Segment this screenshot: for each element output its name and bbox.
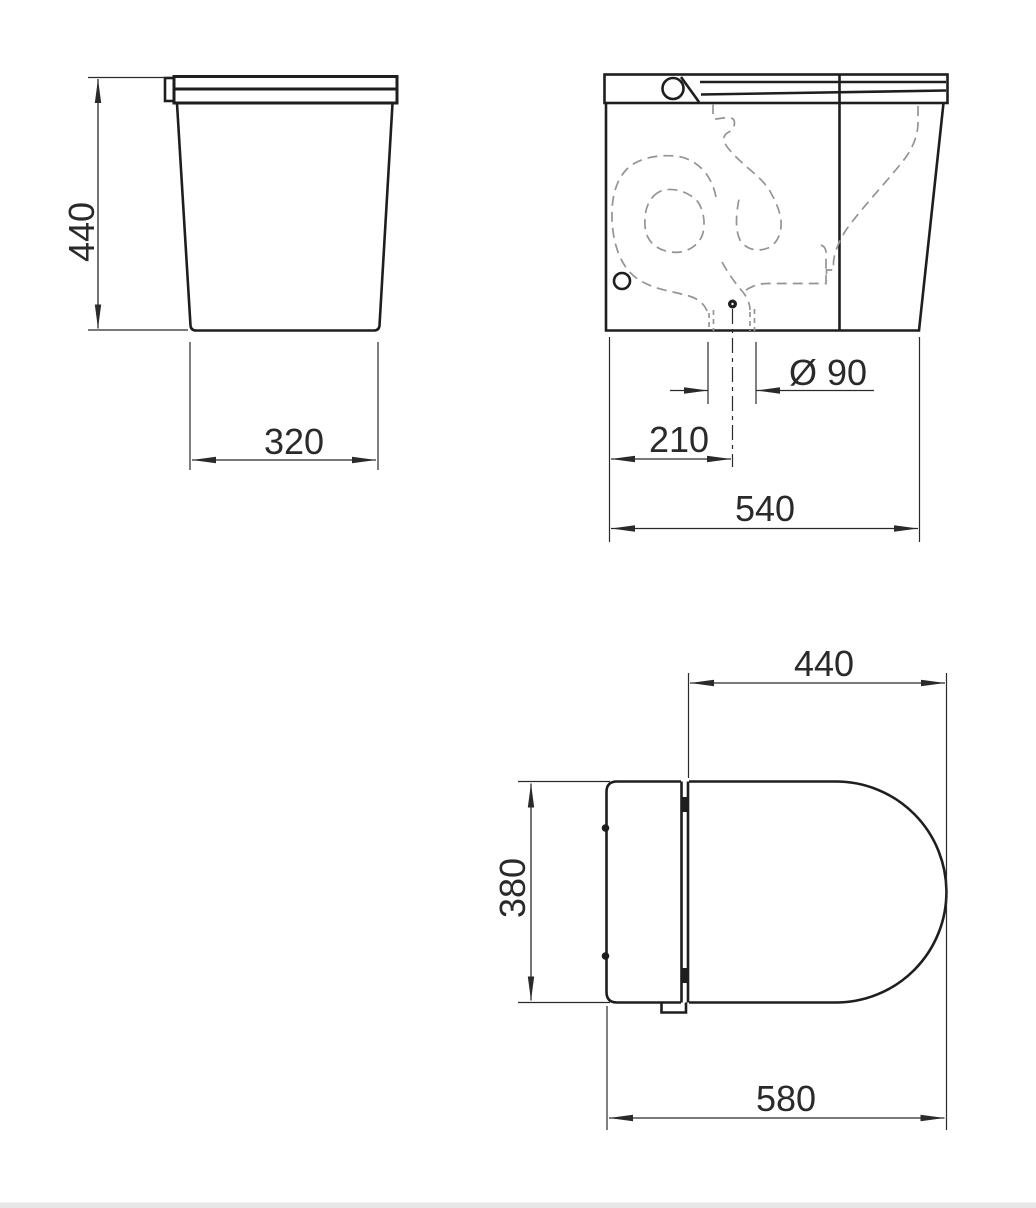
top-view xyxy=(602,782,947,1013)
trap-inner-loop-dashed xyxy=(645,189,704,252)
technical-drawing: 440 320 Ø 90 xyxy=(0,0,1036,1208)
front-width-label: 320 xyxy=(264,421,324,462)
footer-bar xyxy=(0,1203,1036,1208)
drawing-sheet: 440 320 Ø 90 xyxy=(0,0,1036,1208)
side-seat-strip xyxy=(605,75,948,104)
fixing-hole-circle xyxy=(614,273,630,289)
top-tank-outline xyxy=(607,782,682,1003)
length-label: 580 xyxy=(756,1078,816,1119)
drain-edges-dashed xyxy=(709,309,755,331)
side-body-outline xyxy=(606,103,944,331)
width-dimension: 380 xyxy=(492,782,610,1003)
top-lid-outline xyxy=(689,782,946,1003)
lid-length-dimension: 440 xyxy=(689,643,947,1130)
side-pin-upper xyxy=(602,824,610,832)
side-view xyxy=(605,75,948,468)
lid-length-label: 440 xyxy=(794,643,854,684)
length-dimension: 580 xyxy=(607,1006,945,1130)
outlet-diameter-label: Ø 90 xyxy=(789,352,867,393)
trap-inlet-dashed xyxy=(713,104,781,250)
outlet-diameter-dimension: Ø 90 xyxy=(670,342,874,404)
front-view xyxy=(165,77,397,331)
depth-label: 540 xyxy=(735,488,795,529)
outlet-center-dot-core xyxy=(731,303,733,305)
top-hinge-mark-upper xyxy=(683,797,689,812)
front-height-label: 440 xyxy=(61,202,102,262)
top-tab-outline xyxy=(662,1003,687,1013)
front-width-dimension: 320 xyxy=(190,342,378,470)
outlet-offset-label: 210 xyxy=(649,419,709,460)
trap-outlet-run-dashed xyxy=(746,245,826,290)
top-hinge-mark-lower xyxy=(683,968,689,983)
front-height-dimension: 440 xyxy=(61,78,188,331)
outlet-offset-dimension: 210 xyxy=(610,337,732,542)
front-body-outline xyxy=(177,104,393,331)
width-label: 380 xyxy=(492,858,533,918)
side-seat-line xyxy=(701,91,946,95)
seat-hinge-circle xyxy=(663,78,684,99)
side-pin-lower xyxy=(602,952,610,960)
